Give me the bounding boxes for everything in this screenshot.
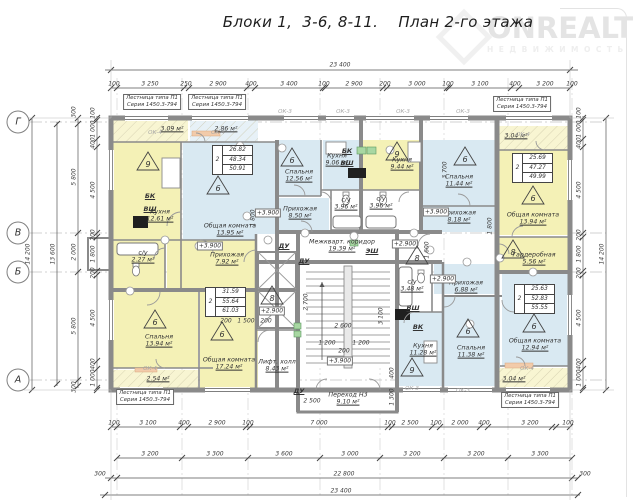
blueprint-page: ONREALT НЕДВИЖИМОСТЬ Блоки 1, 3-6, 8-11.…	[0, 0, 633, 502]
room-hatch-balcony-tl-1	[113, 120, 188, 142]
room-living-tl	[183, 142, 277, 240]
room-hatch-balcony-bl	[113, 370, 198, 388]
room-bedroom-r	[423, 140, 497, 206]
room-bedroom-bl	[113, 292, 198, 368]
floor-plan-drawing	[0, 0, 633, 502]
room-living-bl	[200, 292, 258, 390]
room-bedroom-br	[444, 296, 500, 386]
room-hall-r	[423, 206, 497, 232]
room-hall-ml	[279, 198, 329, 232]
room-wardrobe-tr	[499, 237, 568, 272]
room-living-br	[502, 274, 568, 366]
drawing-title: Блоки 1, 3-6, 8-11. План 2-го этажа	[223, 13, 533, 31]
watermark-card-border	[560, 8, 627, 497]
watermark-subtext: НЕДВИЖИМОСТЬ	[487, 46, 633, 54]
room-living-tr	[499, 150, 568, 235]
